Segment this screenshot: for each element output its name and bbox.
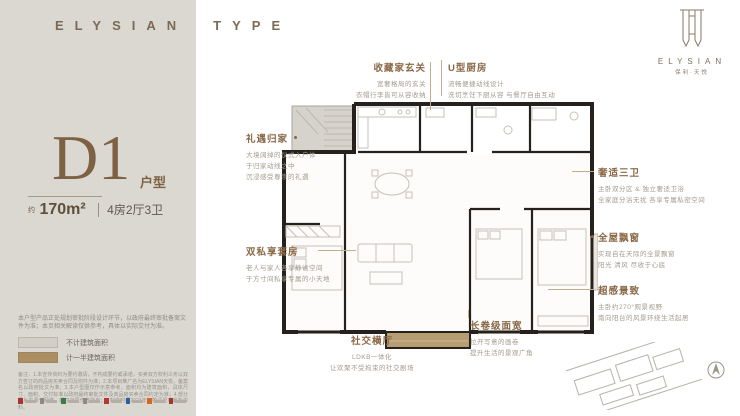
partner-logos-row (18, 398, 190, 404)
unit-rooms: 4房2厅3卫 (98, 203, 163, 217)
legend-swatch-not-counted (18, 337, 58, 348)
leader-dot-homecoming (294, 136, 297, 139)
annotation-kitchen-line: 流畅便捷动线设计 (448, 79, 598, 90)
annotation-suites-line: 老人与家人各享静谧空间 (246, 263, 366, 274)
annotation-kitchen-line: 洗切烹饪下厨从容 与餐厅自由互动 (448, 90, 598, 101)
leader-line-baths (572, 171, 594, 172)
legend-label-not-counted: 不计建筑面积 (66, 338, 108, 348)
annotation-baths-line: 全家庭分浴无扰 各享专属私密空间 (598, 195, 736, 206)
site-plan (566, 342, 734, 410)
legend-row-not-counted: 不计建筑面积 (18, 337, 115, 348)
leader-line-kitchen (441, 60, 442, 96)
annotation-kitchen-title: U型厨房 (448, 60, 598, 74)
corporate-logo: ELYSIAN 保利·天悦 (648, 8, 736, 76)
fine-print: 备注：1.本宣传资料为要约邀请，不构成要约或承诺，买卖双方权利义务以双方签订的商… (18, 372, 188, 411)
annotation-bay-window-line: 阳光 清风 尽收于心底 (598, 260, 736, 271)
partner-logo-text (46, 400, 57, 403)
annotation-view-title: 超感景致 (598, 283, 736, 297)
leader-line-foyer (430, 62, 431, 110)
partner-logo-text (111, 400, 122, 403)
unit-code-label: 户型 (140, 172, 166, 191)
unit-area-prefix: 约 (28, 207, 35, 214)
partner-logo-icon (40, 398, 45, 404)
annotation-bay-window: 全屋飘窗 实现自在天际的全景飘窗 阳光 清风 尽收于心底 (598, 230, 736, 271)
annotation-homecoming-line: 大境阔绰的仪式入户体 (246, 150, 356, 161)
partner-logo-text (154, 400, 165, 403)
partner-logo-icon (18, 398, 23, 404)
partner-logo-icon (83, 398, 88, 404)
legend-label-half-counted: 计一半建筑面积 (66, 353, 115, 363)
annotation-view-line: 主卧约270°观景视野 (598, 302, 736, 313)
area-legend: 不计建筑面积 计一半建筑面积 (18, 337, 115, 367)
annotation-suites-title: 双私享套房 (246, 244, 366, 258)
partner-logo-icon (104, 398, 109, 404)
divider (28, 196, 102, 197)
leader-line-suites (318, 250, 356, 251)
partner-logo-text (68, 400, 79, 403)
legend-swatch-half-counted (18, 352, 58, 363)
brand-wordmark: ELYSIANTYPE (55, 18, 291, 33)
annotation-living-hall-line: LDKB一体化 (292, 352, 452, 363)
partner-logo-icon (61, 398, 66, 404)
site-plan-buildings (566, 342, 702, 410)
partner-logo-text (25, 400, 36, 403)
annotation-baths: 奢适三卫 主卧双分区 & 独立奢适卫浴 全家庭分浴无扰 各享专属私密空间 (598, 165, 736, 206)
annotation-foyer: 收藏家玄关 宽奢格局的玄关 衣帽行李皆可从容收纳 (298, 60, 426, 101)
annotation-baths-line: 主卧双分区 & 独立奢适卫浴 (598, 184, 736, 195)
legend-row-half-counted: 计一半建筑面积 (18, 352, 115, 363)
annotation-foyer-line: 衣帽行李皆可从容收纳 (298, 90, 426, 101)
annotation-baths-title: 奢适三卫 (598, 165, 736, 179)
page: ELYSIANTYPE D1 户型 约 170m² 4房2厅3卫 本户型产品正处… (0, 0, 740, 416)
partner-logo-text (89, 400, 100, 403)
panel-note: 本户型产品正处规划审批阶段设计环节，以政府最终审批备案文件为准；本页相关解读仅供… (18, 315, 186, 331)
annotation-view: 超感景致 主卧约270°观景视野 南向阳台的风景环绕生活起居 (598, 283, 736, 324)
north-arrow-icon (708, 362, 724, 378)
annotation-living-hall: 社交横厅 LDKB一体化 让欢聚不受拘束的社交剧场 (292, 333, 452, 374)
partner-logo-icon (169, 398, 174, 404)
partner-logo-icon (126, 398, 131, 404)
unit-area: 170m² (39, 201, 85, 218)
elysian-emblem-icon (675, 8, 709, 50)
annotation-homecoming-line: 沉浸感受尊崇的礼遇 (246, 172, 356, 183)
annotation-homecoming-title: 礼遇归家 (246, 131, 356, 145)
partner-logo-text (175, 400, 186, 403)
leader-dot-bay-window (591, 235, 594, 238)
annotation-living-hall-line: 让欢聚不受拘束的社交剧场 (292, 363, 452, 374)
brand-wordmark-left: ELYSIAN (55, 18, 187, 33)
partner-logo-icon (147, 398, 152, 404)
annotation-bay-window-line: 实现自在天际的全景飘窗 (598, 249, 736, 260)
annotation-foyer-title: 收藏家玄关 (298, 60, 426, 74)
annotation-foyer-line: 宽奢格局的玄关 (298, 79, 426, 90)
leader-tick-frontage (468, 310, 469, 318)
unit-code: D1 (52, 126, 130, 190)
corporate-logo-subtitle: 保利·天悦 (648, 68, 736, 76)
partner-logo-text (132, 400, 143, 403)
annotation-bay-window-title: 全屋飘窗 (598, 230, 736, 244)
leader-line-view (548, 289, 594, 290)
annotation-kitchen: U型厨房 流畅便捷动线设计 洗切烹饪下厨从容 与餐厅自由互动 (448, 60, 598, 101)
unit-area-row: 约 170m² 4房2厅3卫 (28, 201, 163, 219)
annotation-living-hall-title: 社交横厅 (292, 333, 452, 347)
corporate-logo-wordmark: ELYSIAN (648, 57, 736, 66)
brand-wordmark-right: TYPE (213, 18, 291, 33)
annotation-homecoming: 礼遇归家 大境阔绰的仪式入户体 于归家动线之中 沉浸感受尊崇的礼遇 (246, 131, 356, 183)
annotation-suites-line: 于方寸间私享专属的小天地 (246, 274, 366, 285)
annotation-frontage-title: 长卷级面宽 (470, 318, 590, 332)
annotation-view-line: 南向阳台的风景环绕生活起居 (598, 313, 736, 324)
annotation-homecoming-line: 于归家动线之中 (246, 161, 356, 172)
